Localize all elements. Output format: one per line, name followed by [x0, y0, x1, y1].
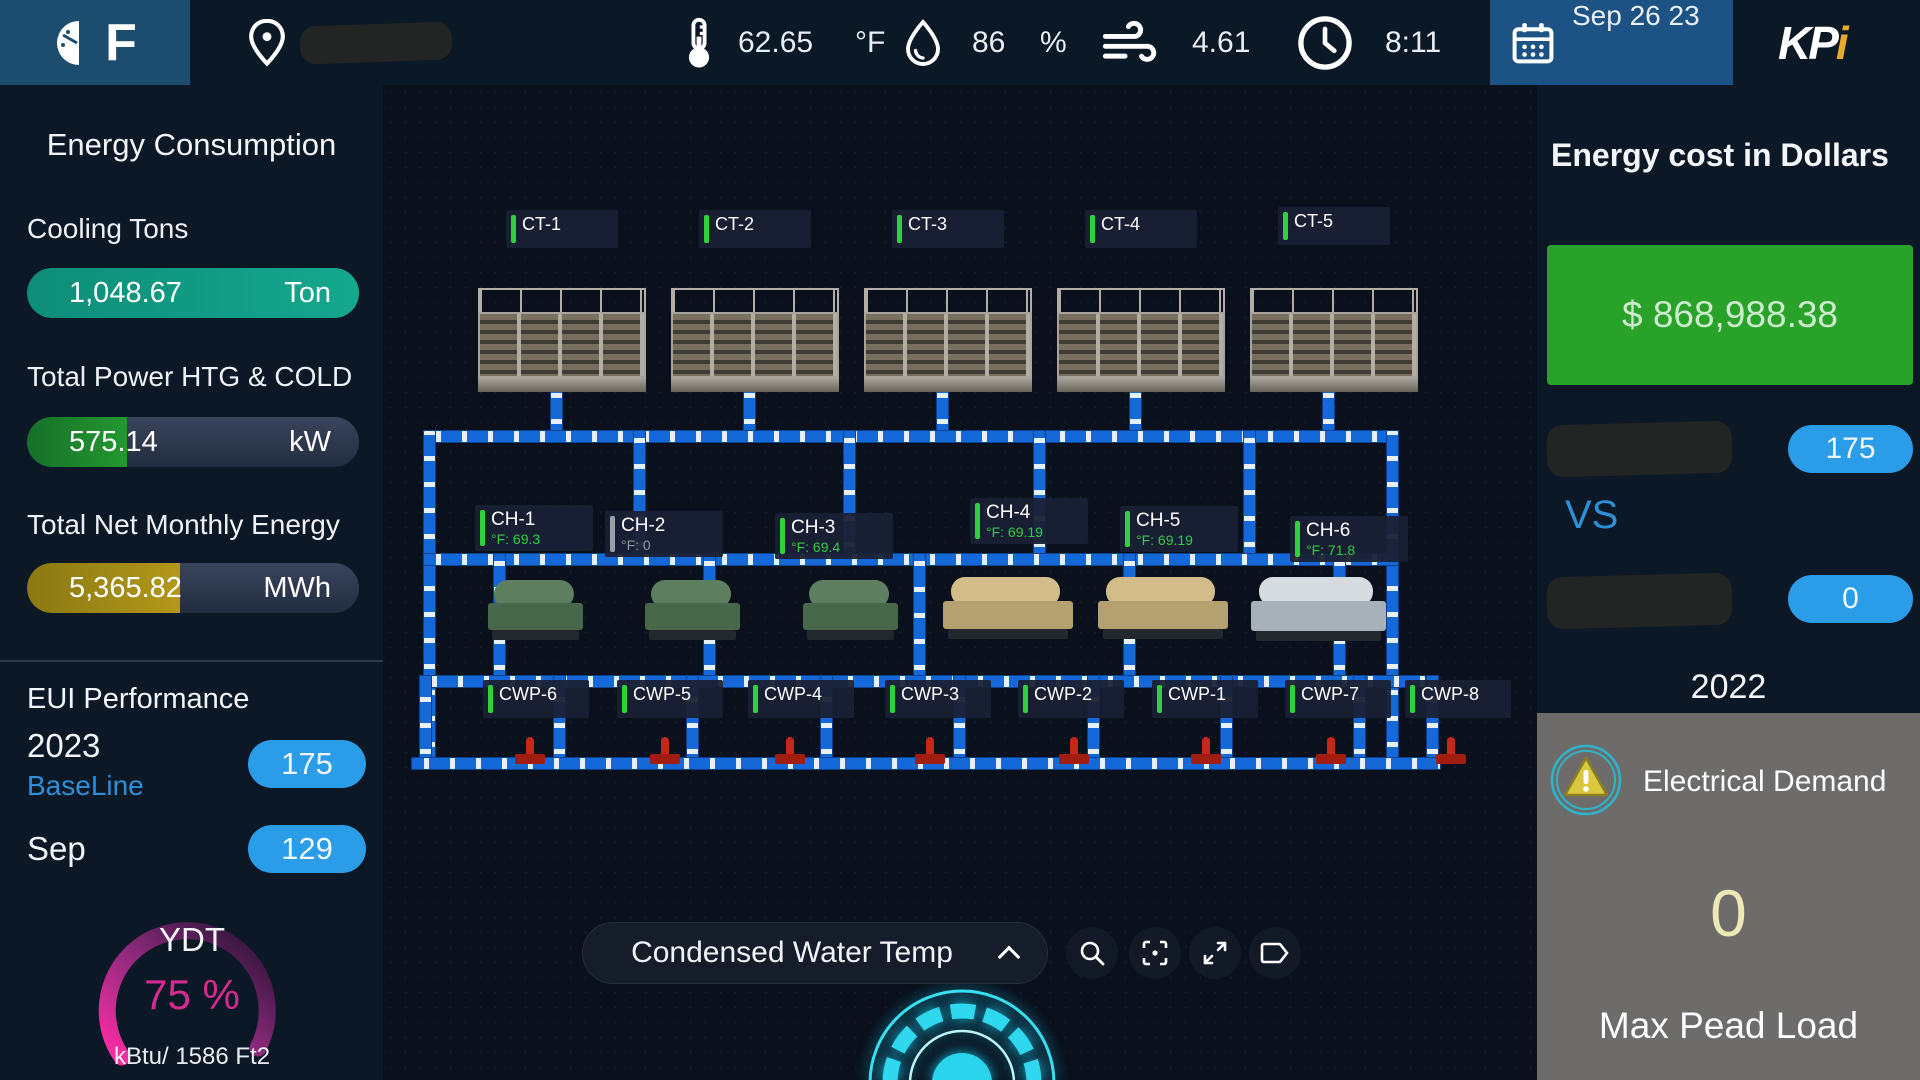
- chiller-unit-1: [488, 580, 583, 640]
- cooling-tower-1: [478, 288, 646, 392]
- app-logo: F: [0, 0, 190, 85]
- ydt-percent: 75 %: [27, 971, 357, 1019]
- pipe: [419, 675, 432, 767]
- ydt-caption: kBtu/ 1586 Ft2: [27, 1043, 357, 1071]
- monthly-energy-unit: MWh: [263, 563, 331, 613]
- metric-selector-dropdown[interactable]: Condensed Water Temp: [582, 922, 1048, 984]
- logo-letter: F: [105, 13, 135, 73]
- pipe: [423, 553, 1399, 566]
- energy-cost-panel: Energy cost in Dollars $ 868,988.38 175 …: [1537, 85, 1920, 1080]
- eui-performance-title: EUI Performance: [27, 683, 249, 716]
- vs-label: VS: [1565, 493, 1618, 538]
- eui-baseline-badge: 175: [248, 740, 366, 788]
- expand-arrows-icon: [1201, 939, 1229, 967]
- monthly-energy-label: Total Net Monthly Energy: [27, 509, 340, 541]
- tag-ch-1[interactable]: CH-1°F: 69.3: [475, 505, 593, 551]
- bms-dashboard: F 62.65 °F 86 % 4.61 8:11: [0, 0, 1920, 1080]
- total-power-unit: kW: [289, 417, 331, 467]
- max-pead-load-label: Max Pead Load: [1537, 1005, 1920, 1047]
- tag-ct-3[interactable]: CT-3: [892, 210, 1004, 248]
- clock-icon: [1297, 15, 1353, 71]
- valve-icon: [1059, 737, 1089, 769]
- panel-title: Energy Consumption: [0, 127, 383, 163]
- pipe: [913, 553, 926, 683]
- tag-polygon-icon: [1260, 940, 1290, 966]
- tag-ch-6[interactable]: CH-6°F: 71.8: [1290, 516, 1408, 562]
- redacted-compare-label-bottom: [1546, 573, 1732, 630]
- valve-icon: [915, 737, 945, 769]
- eui-sep-badge: 129: [248, 825, 366, 873]
- energy-cost-value: $ 868,988.38: [1547, 245, 1913, 385]
- time-value: 8:11: [1385, 0, 1441, 85]
- fullscreen-button[interactable]: [1189, 927, 1241, 979]
- eui-baseline-label: BaseLine: [27, 770, 144, 802]
- annotation-button[interactable]: [1249, 927, 1301, 979]
- tag-ch-3[interactable]: CH-3°F: 69.4: [775, 513, 893, 559]
- humidity-unit: %: [1040, 0, 1067, 85]
- location-pin-icon[interactable]: [248, 19, 286, 67]
- kpi-brand-logo: KPi: [1778, 0, 1846, 85]
- chiller-unit-6: [1251, 577, 1386, 641]
- warning-icon: [1549, 743, 1623, 817]
- total-power-label: Total Power HTG & COLD: [27, 361, 352, 393]
- cooling-tons-value: 1,048.67: [69, 268, 182, 318]
- chiller-unit-2: [645, 580, 740, 640]
- wind-icon: [1102, 20, 1158, 66]
- temperature-unit: °F: [855, 0, 885, 85]
- date-picker[interactable]: Sep 26 23: [1490, 0, 1733, 85]
- top-bar: F 62.65 °F 86 % 4.61 8:11: [0, 0, 1920, 85]
- humidity-icon: [903, 19, 943, 67]
- humidity-value: 86: [972, 0, 1005, 85]
- tag-ct-5[interactable]: CT-5: [1278, 207, 1390, 245]
- selector-label: Condensed Water Temp: [583, 936, 1001, 970]
- cooling-tower-5: [1250, 288, 1418, 392]
- tag-cwp-2[interactable]: CWP-2: [1018, 680, 1124, 718]
- redacted-location-name: [299, 21, 452, 64]
- redacted-compare-label-top: [1546, 421, 1732, 478]
- compare-badge-bottom: 0: [1788, 575, 1913, 623]
- monthly-energy-value: 5,365.82: [69, 563, 182, 613]
- tag-ch-2[interactable]: CH-2°F: 0: [605, 511, 723, 557]
- comparison-year: 2022: [1537, 668, 1920, 707]
- tag-ct-2[interactable]: CT-2: [699, 210, 811, 248]
- compare-badge-top: 175: [1788, 425, 1913, 473]
- electrical-demand-label: Electrical Demand: [1643, 765, 1886, 799]
- temperature-icon: [683, 17, 715, 69]
- valve-icon: [1436, 737, 1466, 769]
- valve-icon: [775, 737, 805, 769]
- valve-icon: [515, 737, 545, 769]
- ydt-label: YDT: [27, 921, 357, 959]
- tag-cwp-3[interactable]: CWP-3: [885, 680, 991, 718]
- chiller-unit-3: [803, 580, 898, 640]
- tag-ch-5[interactable]: CH-5°F: 69.19: [1120, 506, 1238, 552]
- cooling-tower-2: [671, 288, 839, 392]
- kpi-brand-kp: KP: [1778, 16, 1836, 70]
- tag-ct-1[interactable]: CT-1: [506, 210, 618, 248]
- valve-icon: [1316, 737, 1346, 769]
- tag-cwp-6[interactable]: CWP-6: [483, 680, 589, 718]
- electrical-demand-panel: Electrical Demand 0 Max Pead Load: [1537, 713, 1920, 1080]
- chevron-up-icon[interactable]: [998, 946, 1021, 969]
- cooling-tower-4: [1057, 288, 1225, 392]
- tag-cwp-1[interactable]: CWP-1: [1152, 680, 1258, 718]
- total-power-bar: 575.14 kW: [27, 417, 359, 467]
- chiller-unit-5: [1098, 577, 1228, 639]
- valve-icon: [650, 737, 680, 769]
- plant-schematic-canvas: CT-1 CT-2 CT-3 CT-4 CT-5 CH-1°F: 69.3 CH…: [383, 85, 1537, 1080]
- energy-cost-title: Energy cost in Dollars: [1551, 137, 1889, 174]
- cooling-tons-label: Cooling Tons: [27, 213, 188, 245]
- sidebar-divider: [0, 660, 383, 662]
- total-power-value: 575.14: [69, 417, 158, 467]
- tag-ch-4[interactable]: CH-4°F: 69.19: [970, 498, 1088, 544]
- monthly-energy-bar: 5,365.82 MWh: [27, 563, 359, 613]
- tag-cwp-4[interactable]: CWP-4: [748, 680, 854, 718]
- tag-cwp-8[interactable]: CWP-8: [1405, 680, 1511, 718]
- electrical-demand-value: 0: [1537, 875, 1920, 951]
- chiller-unit-4: [943, 577, 1073, 639]
- cooling-tower-3: [864, 288, 1032, 392]
- ydt-gauge: YDT 75 % kBtu/ 1586 Ft2: [27, 903, 357, 1080]
- valve-icon: [1191, 737, 1221, 769]
- zoom-search-button[interactable]: [1066, 927, 1118, 979]
- cooling-tons-bar: 1,048.67 Ton: [27, 268, 359, 318]
- eui-month-sep: Sep: [27, 830, 86, 868]
- focus-scan-icon: [1141, 939, 1169, 967]
- wind-value: 4.61: [1192, 0, 1250, 85]
- cooling-tons-unit: Ton: [284, 268, 331, 318]
- search-icon: [1078, 939, 1106, 967]
- tag-cwp-7[interactable]: CWP-7: [1285, 680, 1391, 718]
- energy-consumption-panel: Energy Consumption Cooling Tons 1,048.67…: [0, 85, 383, 1080]
- date-value: Sep 26 23: [1572, 0, 1700, 85]
- pipe: [1243, 430, 1256, 560]
- tag-ct-4[interactable]: CT-4: [1085, 210, 1197, 248]
- kpi-brand-i: i: [1836, 16, 1846, 70]
- hud-gauge: [862, 983, 1062, 1080]
- eui-year-2023: 2023: [27, 727, 100, 765]
- tag-cwp-5[interactable]: CWP-5: [617, 680, 723, 718]
- calendar-icon: [1510, 20, 1556, 66]
- gauge-logo-icon: [55, 19, 103, 67]
- focus-center-button[interactable]: [1129, 927, 1181, 979]
- temperature-value: 62.65: [738, 0, 813, 85]
